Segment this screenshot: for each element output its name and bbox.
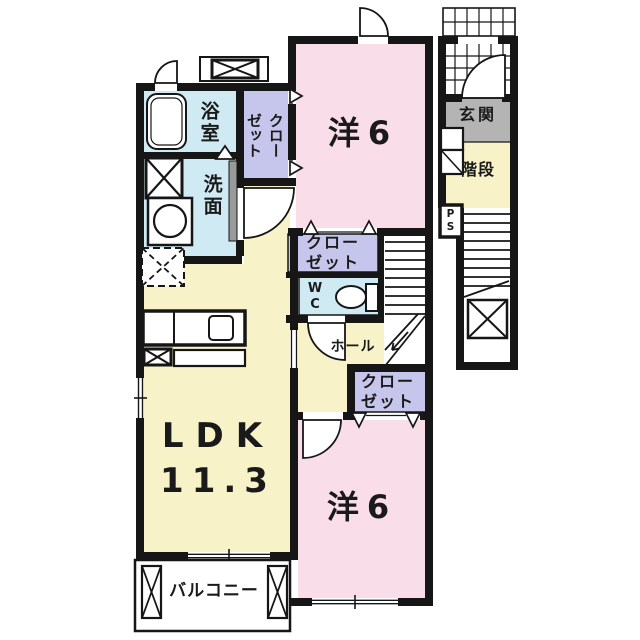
hall-strip-fill	[298, 368, 347, 412]
stair-landing-cross-icon	[468, 300, 507, 338]
hall-label: ホール	[324, 339, 382, 357]
kitchen-counter-icon	[143, 311, 245, 366]
entrance-door-arc	[462, 55, 505, 98]
toilet-icon	[336, 284, 378, 311]
external-stairs	[464, 214, 510, 338]
balcony-label: バルコニー	[158, 580, 270, 602]
bedroom-bottom-label: 洋6	[303, 486, 421, 530]
equipment-box-icon	[200, 57, 268, 81]
washroom-label: 洗面	[195, 167, 227, 225]
closet-middle-label: クロー ゼット	[288, 233, 378, 273]
bathtub-icon	[147, 94, 186, 149]
balcony-post-right-icon	[268, 566, 287, 618]
bedroom-top-entry-door-arc	[360, 8, 388, 36]
floor-plan-drawing	[0, 0, 640, 640]
entrance-label: 玄関	[446, 104, 510, 126]
closet-top-label: クロー ゼット	[241, 92, 287, 178]
washing-machine-icon	[148, 198, 192, 245]
shoe-cabinet-icon	[441, 128, 463, 150]
laundry-space-icon	[146, 158, 182, 198]
ldk-label: LDK	[146, 415, 290, 459]
vanity-counter-icon	[229, 161, 237, 241]
bath-service-door-arc	[155, 61, 177, 83]
staircase-label: 階段	[446, 159, 510, 181]
floor-plan: 浴室 クロー ゼット 洗面 洋6 クロー ゼット W C ホール クロー ゼット…	[0, 0, 640, 640]
ldk-hall-opening	[292, 330, 297, 368]
ldk-fill	[144, 264, 290, 552]
internal-stairs	[385, 242, 425, 366]
closet-bottom-label: クロー ゼット	[350, 371, 426, 412]
bath-label: 浴室	[192, 94, 224, 152]
refrigerator-space-icon	[142, 248, 184, 286]
bedroom-top-label: 洋6	[308, 112, 418, 156]
ldk-area-label: 11.3	[146, 460, 290, 504]
pipe-space-label: P S	[440, 206, 461, 236]
wc-label: W C	[303, 279, 327, 315]
